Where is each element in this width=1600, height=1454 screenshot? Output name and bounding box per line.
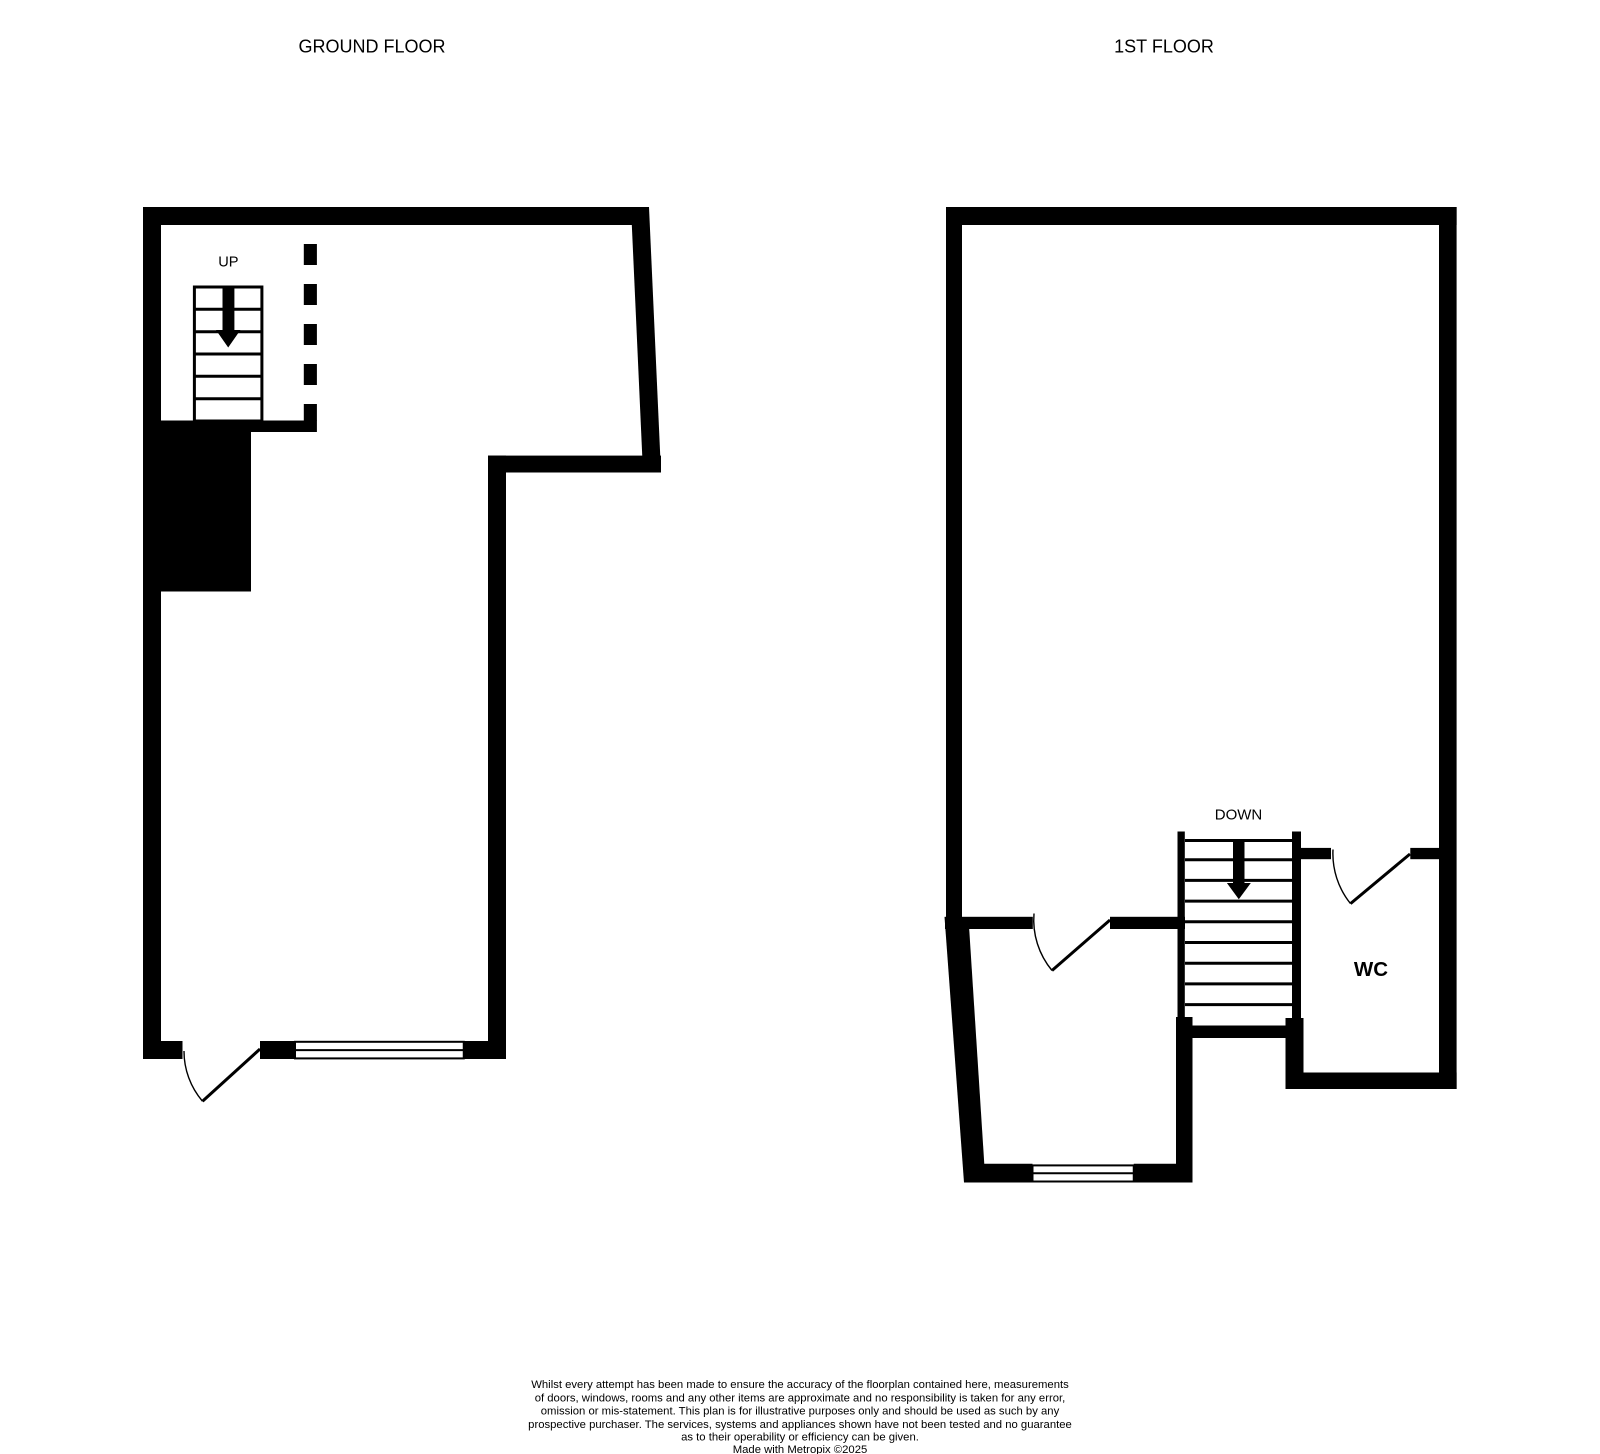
- svg-text:UP: UP: [218, 255, 238, 271]
- svg-text:of doors, windows, rooms and a: of doors, windows, rooms and any other i…: [535, 1392, 1066, 1404]
- svg-text:1ST FLOOR: 1ST FLOOR: [1114, 37, 1214, 57]
- svg-text:prospective purchaser. The ser: prospective purchaser. The services, sys…: [528, 1419, 1072, 1431]
- svg-text:DOWN: DOWN: [1215, 807, 1263, 824]
- svg-text:GROUND FLOOR: GROUND FLOOR: [298, 37, 445, 57]
- svg-text:as to their operability or eff: as to their operability or efficiency ca…: [681, 1432, 919, 1444]
- svg-text:omission or mis-statement. Thi: omission or mis-statement. This plan is …: [541, 1406, 1060, 1418]
- svg-text:WC: WC: [1354, 958, 1388, 981]
- svg-text:Whilst every attempt has been: Whilst every attempt has been made to en…: [531, 1379, 1069, 1391]
- svg-text:Made with Metropix ©2025: Made with Metropix ©2025: [733, 1444, 868, 1454]
